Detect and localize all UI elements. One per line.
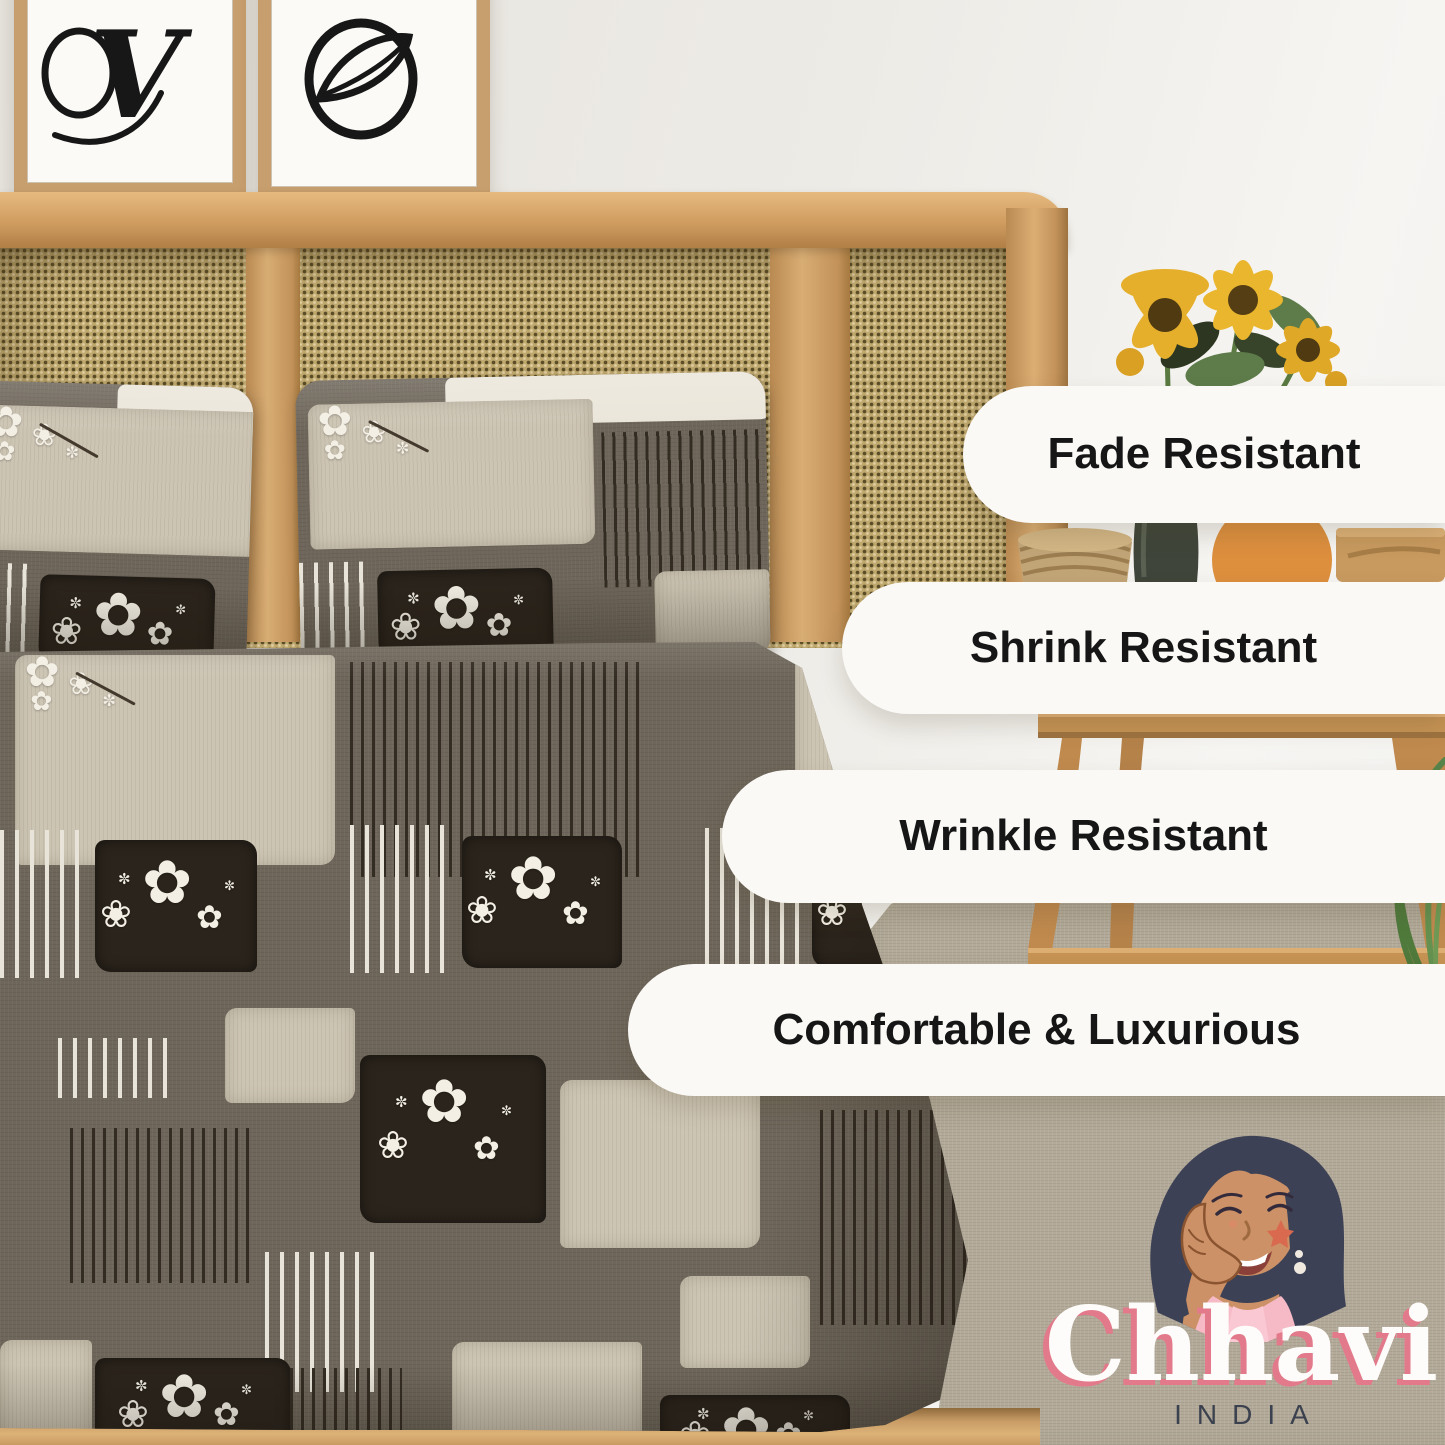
flower-motif: ✿ [30, 689, 52, 716]
flower-motif: ✿ [196, 901, 223, 933]
pillow-left: ✿❀✿✼✿❀✿✼✼ [0, 380, 254, 672]
flower-motif: ✼ [241, 1384, 252, 1397]
sheet-pattern-patch [0, 830, 88, 978]
wall-art-glyph-leaf [271, 0, 451, 161]
flower-motif: ✿ [146, 618, 174, 651]
flower-motif: ✿ [562, 897, 589, 929]
brand-name: Chhavi [1038, 1292, 1445, 1399]
feature-badge-label: Wrinkle Resistant [899, 813, 1267, 859]
pillow-right: ✿❀✿✼✿❀✿✼✼ [295, 371, 771, 671]
feature-badge: Wrinkle Resistant [722, 770, 1445, 903]
flower-motif: ✿ [159, 1367, 209, 1427]
sheet-pattern-patch [225, 1008, 355, 1103]
wall-art-frame-left: V [14, 0, 246, 196]
flower-motif: ✼ [590, 876, 601, 889]
flower-motif: ✿ [142, 853, 192, 913]
flower-motif: ❀ [117, 1395, 149, 1433]
flower-motif: ✿ [485, 609, 512, 642]
flower-motif: ❀ [466, 891, 498, 929]
feature-badge-label: Comfortable & Luxurious [772, 1007, 1300, 1053]
flower-motif: ✼ [513, 595, 524, 608]
headboard-top-rail [0, 192, 1068, 248]
wall-art-frame-right [258, 0, 490, 200]
flower-motif: ✿ [419, 1072, 469, 1132]
brand-logo: Chhavi INDIA [1038, 1292, 1445, 1431]
flower-motif: ✼ [501, 1105, 512, 1118]
sheet-pattern-patch: ✿❀✿✼✼ [360, 1055, 546, 1223]
flower-motif: ✼ [118, 872, 131, 887]
flower-motif: ✿ [0, 439, 16, 466]
flower-motif: ❀ [100, 895, 132, 933]
flower-motif: ✼ [407, 592, 420, 607]
flower-motif: ✼ [69, 596, 82, 611]
sheet-pattern-patch [58, 1038, 174, 1098]
flower-motif: ✿ [92, 584, 144, 645]
flower-motif: ❀ [389, 607, 422, 646]
feature-badge: Fade Resistant [963, 386, 1445, 523]
flower-motif: ✼ [484, 868, 497, 883]
flower-motif: ✿ [323, 438, 346, 465]
flower-motif: ✼ [135, 1379, 148, 1394]
headboard-strut-right [770, 246, 850, 642]
flower-motif: ✼ [102, 693, 116, 709]
flower-motif: ❀ [377, 1126, 409, 1164]
feature-badge-label: Fade Resistant [1048, 431, 1361, 477]
flower-motif: ✿ [508, 849, 558, 909]
feature-badge-label: Shrink Resistant [970, 625, 1317, 671]
sheet-pattern-patch [0, 562, 35, 664]
sheet-pattern-patch [350, 825, 452, 973]
sheet-pattern-patch: ✿❀✿✼✼ [95, 840, 257, 972]
sheet-pattern-patch [452, 1342, 642, 1445]
feature-badge: Shrink Resistant [842, 582, 1445, 714]
feature-badge: Comfortable & Luxurious [628, 964, 1445, 1096]
sheet-pattern-patch [601, 429, 769, 587]
sheet-pattern-patch [560, 1080, 760, 1248]
sheet-pattern-patch: ✿❀✿✼✼ [462, 836, 622, 968]
flower-motif: ✼ [803, 1410, 814, 1423]
flower-motif: ✼ [224, 880, 235, 893]
flower-motif: ✿ [213, 1398, 240, 1430]
wall-art-glyph-v: V [27, 0, 207, 157]
headboard-strut-left [246, 246, 300, 642]
flower-motif: ✼ [395, 1095, 408, 1110]
flower-motif: ❀ [50, 611, 83, 650]
product-marketing-image: V [0, 0, 1445, 1445]
flower-motif: ✼ [175, 604, 186, 617]
sheet-pattern-patch: ✿❀✿✼ [0, 404, 254, 557]
sheet-pattern-patch [70, 1128, 252, 1283]
flower-motif: ✼ [697, 1407, 710, 1422]
flower-motif: ✿ [431, 578, 483, 639]
flower-motif: ✿ [473, 1132, 500, 1164]
sheet-pattern-patch: ✿❀✿✼ [308, 399, 596, 550]
sheet-pattern-patch [680, 1276, 810, 1368]
